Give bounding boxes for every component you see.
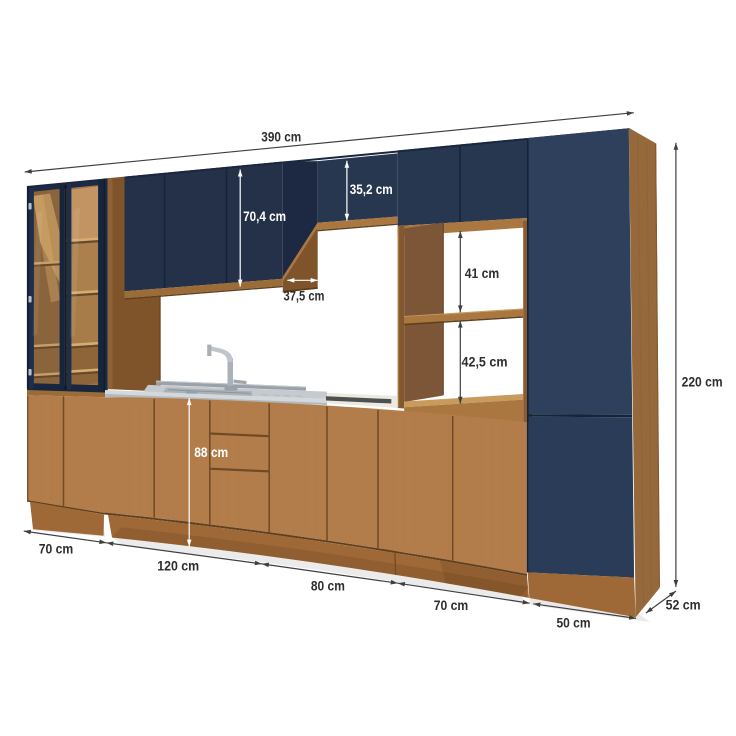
- svg-text:37,5 cm: 37,5 cm: [284, 289, 325, 304]
- svg-text:42,5 cm: 42,5 cm: [462, 355, 508, 370]
- svg-text:70 cm: 70 cm: [434, 598, 469, 613]
- svg-text:52 cm: 52 cm: [666, 598, 701, 613]
- svg-text:70 cm: 70 cm: [39, 542, 74, 557]
- svg-text:50 cm: 50 cm: [557, 616, 591, 631]
- svg-text:35,2 cm: 35,2 cm: [350, 182, 393, 197]
- svg-text:120 cm: 120 cm: [157, 559, 199, 574]
- svg-text:70,4 cm: 70,4 cm: [243, 209, 286, 224]
- svg-text:80 cm: 80 cm: [311, 578, 345, 593]
- svg-text:41 cm: 41 cm: [465, 266, 500, 281]
- svg-text:220 cm: 220 cm: [682, 375, 723, 390]
- svg-text:88 cm: 88 cm: [194, 445, 228, 460]
- svg-text:390 cm: 390 cm: [261, 129, 301, 144]
